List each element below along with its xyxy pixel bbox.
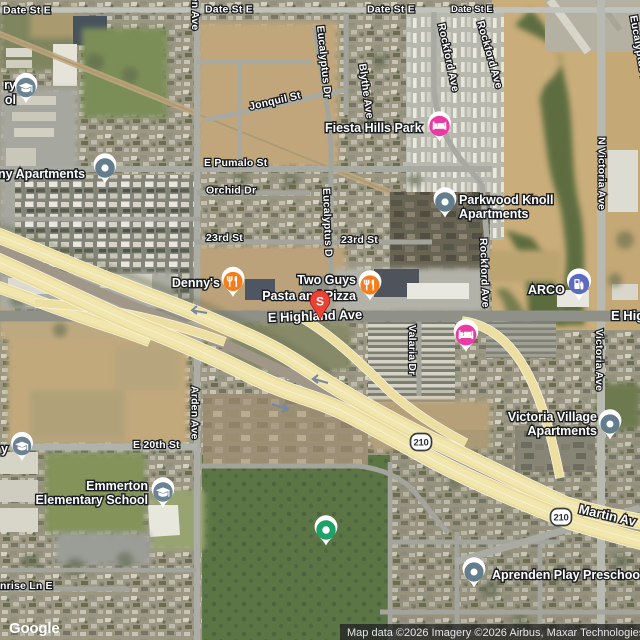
svg-text:23rd St: 23rd St [206, 232, 243, 244]
svg-text:Date St E: Date St E [205, 4, 253, 16]
svg-text:Aprenden Play Preschool: Aprenden Play Preschool [492, 568, 640, 582]
svg-text:Valaria Dr: Valaria Dr [406, 325, 418, 375]
svg-text:Pasta and Pizza: Pasta and Pizza [262, 289, 357, 303]
svg-text:Victoria Ave: Victoria Ave [593, 329, 605, 391]
svg-text:Elementary School: Elementary School [35, 493, 148, 507]
svg-text:23rd St: 23rd St [341, 234, 378, 246]
svg-text:Denny's: Denny's [172, 276, 220, 290]
svg-text:nrise Ln E: nrise Ln E [0, 580, 53, 592]
svg-text:E Highl: E Highl [611, 308, 640, 323]
svg-text:den Ave: den Ave [189, 0, 201, 30]
svg-text:Apartments: Apartments [528, 424, 598, 438]
svg-text:Rockford Ave: Rockford Ave [477, 238, 491, 308]
svg-text:Two Guys: Two Guys [297, 273, 356, 287]
svg-text:y: y [1, 442, 8, 456]
svg-text:210: 210 [414, 438, 429, 449]
svg-text:Orchid Dr: Orchid Dr [206, 185, 256, 197]
svg-text:S: S [316, 295, 324, 309]
svg-text:ry: ry [4, 78, 16, 92]
svg-text:N Victoria Ave: N Victoria Ave [596, 137, 608, 210]
svg-text:Emmerton: Emmerton [86, 479, 148, 493]
svg-text:ol: ol [5, 93, 16, 107]
svg-text:Victoria Village: Victoria Village [508, 410, 597, 424]
svg-text:Date St E: Date St E [3, 5, 51, 17]
svg-text:E Pumalo St: E Pumalo St [204, 157, 268, 169]
svg-text:210: 210 [554, 513, 569, 524]
svg-text:Apartments: Apartments [459, 207, 529, 221]
svg-text:E 20th St: E 20th St [133, 439, 180, 451]
svg-text:Date St E: Date St E [451, 4, 493, 15]
svg-text:Date St E: Date St E [367, 4, 415, 16]
svg-text:Parkwood Knoll: Parkwood Knoll [459, 193, 553, 207]
svg-text:Arden Ave: Arden Ave [189, 386, 201, 440]
svg-text:ARCO: ARCO [528, 283, 565, 297]
svg-text:Map data ©2026 Imagery ©2026 A: Map data ©2026 Imagery ©2026 Airbus, Max… [347, 627, 640, 639]
svg-text:Fiesta Hills Park: Fiesta Hills Park [325, 121, 422, 135]
svg-text:Google: Google [9, 620, 59, 637]
svg-text:Eucalyptus D: Eucalyptus D [320, 188, 334, 258]
svg-text:ny Apartments: ny Apartments [0, 167, 85, 181]
